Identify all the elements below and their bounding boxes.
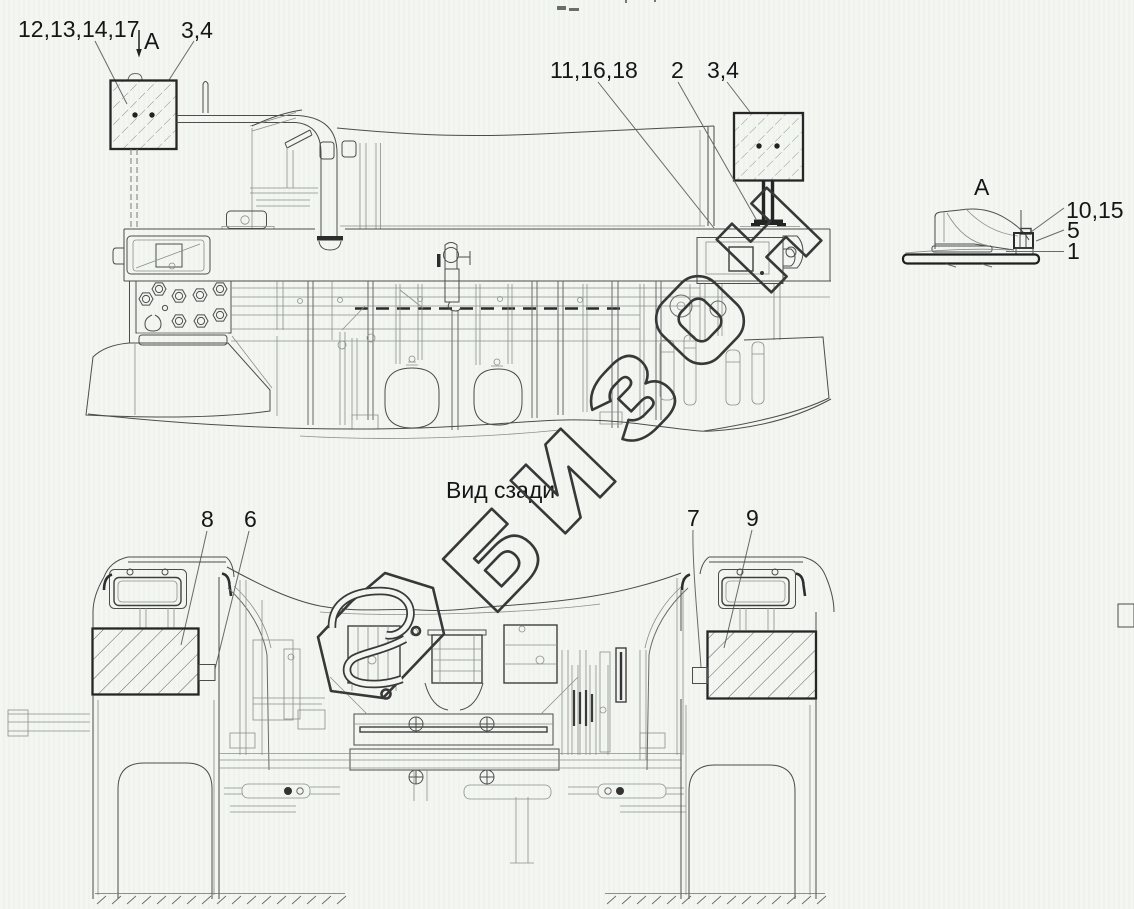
svg-text:11,16,18: 11,16,18 [550, 57, 638, 83]
svg-text:6: 6 [244, 506, 257, 532]
svg-text:A: A [974, 174, 990, 200]
svg-text:8: 8 [201, 506, 214, 532]
svg-text:3,4: 3,4 [707, 57, 739, 83]
svg-text:A: A [144, 28, 160, 54]
svg-text:2: 2 [671, 57, 684, 83]
svg-text:7: 7 [687, 505, 700, 531]
svg-text:12,13,14,17: 12,13,14,17 [18, 16, 140, 42]
svg-text:3,4: 3,4 [181, 17, 213, 43]
svg-text:Вид сзади: Вид сзади [446, 477, 555, 503]
svg-text:9: 9 [746, 505, 759, 531]
svg-text:1: 1 [1067, 238, 1080, 264]
